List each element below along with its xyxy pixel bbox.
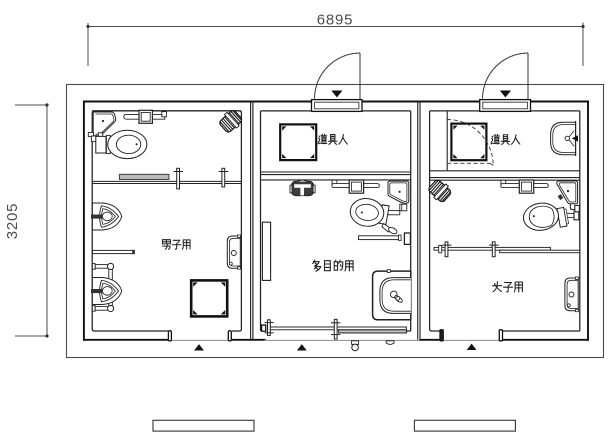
svg-text:3205: 3205: [4, 203, 21, 240]
svg-text:6895: 6895: [317, 12, 354, 29]
